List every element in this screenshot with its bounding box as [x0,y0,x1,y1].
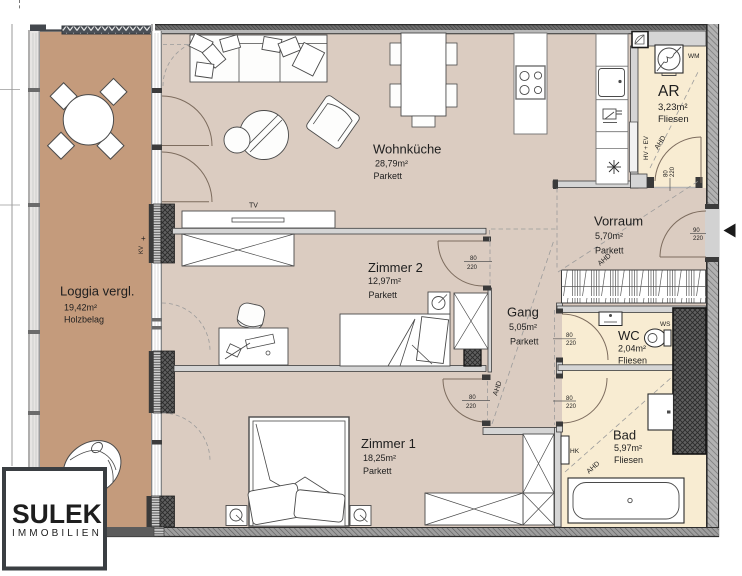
svg-text:220: 220 [566,341,577,347]
svg-text:220: 220 [566,404,577,410]
svg-text:SULEK: SULEK [12,499,102,529]
svg-text:Vorraum: Vorraum [594,214,643,229]
svg-text:Loggia vergl.: Loggia vergl. [60,284,134,299]
svg-text:Zimmer 2: Zimmer 2 [368,260,423,275]
svg-text:Zimmer 1: Zimmer 1 [361,436,416,451]
svg-text:2,04m²: 2,04m² [618,344,646,354]
svg-text:Parkett: Parkett [363,466,392,476]
svg-text:TV: TV [249,203,258,210]
svg-text:Parkett: Parkett [369,290,398,300]
svg-text:Parkett: Parkett [374,171,403,181]
svg-text:+: + [141,234,146,243]
svg-text:Holzbelag: Holzbelag [64,315,104,325]
svg-text:220: 220 [467,265,478,271]
svg-text:80: 80 [566,333,573,339]
svg-text:AR: AR [658,83,680,100]
svg-text:Fliesen: Fliesen [614,455,643,465]
svg-text:Gang: Gang [507,305,539,320]
svg-text:IMMOBILIEN: IMMOBILIEN [12,528,102,539]
svg-text:WC: WC [618,328,640,343]
svg-text:3,23m²: 3,23m² [658,102,688,113]
svg-text:28,79m²: 28,79m² [375,158,408,168]
svg-text:5,97m²: 5,97m² [614,443,642,453]
svg-text:Fliesen: Fliesen [618,355,647,365]
svg-text:80: 80 [469,395,476,401]
svg-text:HK: HK [570,448,580,455]
svg-text:Parkett: Parkett [595,246,624,256]
svg-text:Parkett: Parkett [510,337,539,347]
svg-text:220: 220 [670,166,676,177]
svg-text:80: 80 [470,256,477,262]
svg-text:19,42m²: 19,42m² [64,303,97,313]
svg-text:Fliesen: Fliesen [658,114,689,125]
svg-text:5,70m²: 5,70m² [595,231,623,241]
svg-text:Bad: Bad [613,428,636,443]
svg-text:220: 220 [466,404,477,410]
svg-text:12,97m²: 12,97m² [368,276,401,286]
svg-text:KV: KV [139,246,145,254]
svg-text:90: 90 [693,228,700,234]
svg-text:HV + EV: HV + EV [643,135,650,160]
svg-text:220: 220 [693,236,704,242]
svg-text:80: 80 [664,170,670,177]
svg-text:WM: WM [688,53,700,60]
svg-text:WS: WS [660,321,671,328]
svg-text:18,25m²: 18,25m² [363,453,396,463]
svg-text:Wohnküche: Wohnküche [373,142,441,157]
svg-text:5,05m²: 5,05m² [509,322,537,332]
